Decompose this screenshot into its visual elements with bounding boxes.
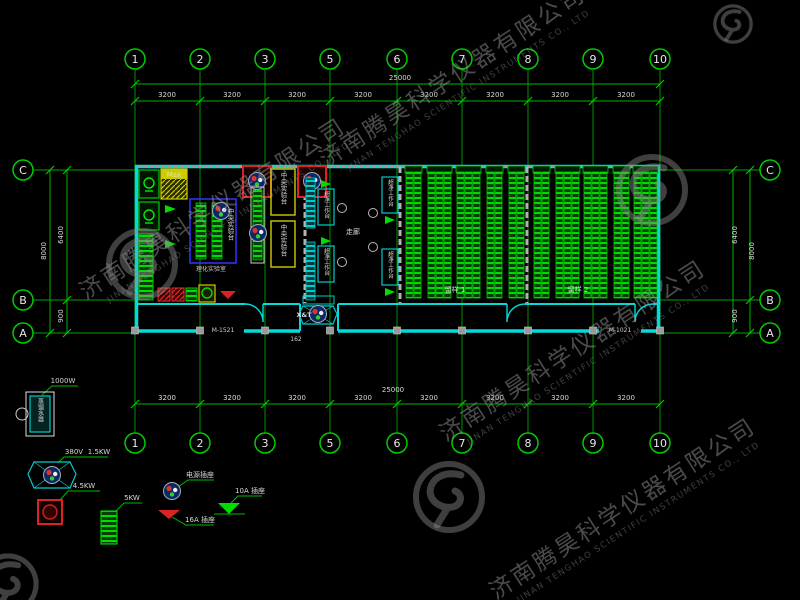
kw5-label: 5KW bbox=[124, 494, 140, 502]
svg-text:3200: 3200 bbox=[158, 394, 176, 402]
wall-counter bbox=[306, 242, 315, 300]
outlet-power-label: 电源插座 bbox=[186, 470, 214, 479]
stool bbox=[338, 204, 347, 213]
svg-text:8: 8 bbox=[525, 437, 532, 450]
svg-text:3200: 3200 bbox=[617, 394, 635, 402]
svg-text:2: 2 bbox=[197, 53, 204, 66]
corridor-label: 走廊 bbox=[346, 227, 360, 236]
axis-bubbles-right: C B A bbox=[760, 160, 780, 343]
clean-bench: 超净工作台 bbox=[382, 177, 398, 224]
svg-text:超净工作台: 超净工作台 bbox=[387, 178, 394, 208]
axis-bubbles-bottom: 1 2 3 5 6 7 8 9 10 bbox=[125, 433, 670, 453]
svg-text:JINAN TENGHAO SCIENTIFIC INSTR: JINAN TENGHAO SCIENTIFIC INSTRUMENTS CO.… bbox=[465, 282, 713, 448]
max-label: Max bbox=[167, 171, 181, 179]
left-dimensions: 8000 6400 900 bbox=[40, 166, 71, 337]
svg-text:10: 10 bbox=[653, 437, 667, 450]
clean-bench-label: 超净工作台 bbox=[323, 190, 330, 220]
svg-text:超净工作台: 超净工作台 bbox=[323, 247, 330, 277]
svg-text:5: 5 bbox=[327, 437, 334, 450]
kw45-label: 4.5KW bbox=[73, 482, 95, 490]
volt-label: 380V bbox=[65, 448, 83, 456]
svg-text:2: 2 bbox=[197, 437, 204, 450]
svg-text:6: 6 bbox=[394, 53, 401, 66]
svg-text:3200: 3200 bbox=[288, 394, 306, 402]
svg-text:3: 3 bbox=[262, 437, 269, 450]
dim-total-top: 25000 bbox=[389, 74, 411, 82]
dim-bay: 3200 bbox=[158, 91, 176, 99]
bench-machine bbox=[199, 285, 215, 302]
svg-text:JINAN TENGHAO SCIENTIFIC INSTR: JINAN TENGHAO SCIENTIFIC INSTRUMENTS CO.… bbox=[515, 440, 763, 600]
distiller-label: 蒸馏水器 bbox=[37, 397, 44, 423]
svg-text:B: B bbox=[766, 294, 774, 307]
legend-distiller: 1000W 蒸馏水器 bbox=[16, 377, 78, 436]
svg-text:C: C bbox=[19, 164, 27, 177]
svg-text:3200: 3200 bbox=[223, 91, 241, 99]
svg-text:5: 5 bbox=[327, 53, 334, 66]
svg-text:6400: 6400 bbox=[731, 226, 739, 244]
svg-text:B: B bbox=[19, 294, 27, 307]
legend-outlet-16a: 16A 插座 bbox=[158, 510, 215, 525]
sample-room-1-racks: 留样 1 bbox=[405, 166, 525, 298]
dim-height-left: 8000 bbox=[40, 242, 48, 260]
floorplan-drawing: 25000 3200 3200 3200 3200 3200 3200 3200… bbox=[0, 0, 800, 600]
distiller-power-label: 1000W bbox=[51, 377, 76, 385]
legend: 1000W 蒸馏水器 380V 1.5KW 4.5KW 5KW 电源插座 16A… bbox=[16, 377, 265, 544]
sample-room-2-racks: 留样 2 bbox=[533, 166, 658, 298]
watermark-logo bbox=[715, 6, 751, 42]
stool bbox=[338, 258, 347, 267]
entry-label: X&T bbox=[296, 311, 312, 319]
wall-note: 162 bbox=[290, 336, 302, 343]
watermark-logo bbox=[0, 556, 36, 600]
legend-power-outlet: 电源插座 bbox=[164, 470, 215, 500]
watermark-logo bbox=[416, 464, 482, 530]
wall-bench-yellow: 中央实验台 bbox=[271, 221, 295, 267]
svg-text:9: 9 bbox=[590, 437, 597, 450]
air-wedge bbox=[165, 205, 176, 213]
svg-text:6: 6 bbox=[394, 437, 401, 450]
right-dimensions: 6400 900 8000 bbox=[729, 166, 756, 337]
sink-symbol bbox=[220, 291, 236, 299]
kw15-label: 1.5KW bbox=[88, 448, 110, 456]
svg-text:10: 10 bbox=[653, 53, 667, 66]
svg-text:C: C bbox=[766, 164, 774, 177]
svg-text:3200: 3200 bbox=[354, 394, 372, 402]
entrance-air-unit: X&T bbox=[296, 296, 337, 324]
svg-text:中央实验台: 中央实验台 bbox=[279, 223, 287, 258]
svg-text:3200: 3200 bbox=[354, 91, 372, 99]
floor-unit bbox=[172, 288, 184, 301]
svg-text:6400: 6400 bbox=[57, 226, 65, 244]
axis-bubbles-left: C B A bbox=[13, 160, 33, 343]
room2-label: 留样 2 bbox=[568, 285, 589, 294]
max-cabinet: Max bbox=[161, 169, 187, 199]
svg-text:1: 1 bbox=[132, 437, 139, 450]
svg-text:900: 900 bbox=[731, 309, 739, 322]
svg-text:9: 9 bbox=[590, 53, 597, 66]
watermarks: 济南腾昊科学仪器有限公司 JINAN TENGHAO SCIENTIFIC IN… bbox=[0, 0, 767, 600]
room-left-label: 理化实验室 bbox=[196, 265, 226, 273]
svg-text:3200: 3200 bbox=[223, 394, 241, 402]
clean-bench: 超净工作台 bbox=[382, 249, 398, 296]
svg-text:3200: 3200 bbox=[288, 91, 306, 99]
wall-counter bbox=[306, 178, 315, 228]
legend-outlet-10a: 10A 插座 bbox=[214, 486, 265, 514]
stool bbox=[369, 209, 378, 218]
equipment-box bbox=[139, 170, 159, 198]
equipment-box bbox=[139, 202, 159, 230]
svg-text:3200: 3200 bbox=[551, 91, 569, 99]
svg-text:3200: 3200 bbox=[486, 91, 504, 99]
axis-bubbles-top: 1 2 3 5 6 7 8 9 10 bbox=[125, 49, 670, 69]
svg-text:A: A bbox=[19, 327, 27, 340]
stool bbox=[369, 243, 378, 252]
svg-text:超净工作台: 超净工作台 bbox=[387, 250, 394, 280]
svg-text:1: 1 bbox=[132, 53, 139, 66]
outlet-10a-label: 10A 插座 bbox=[235, 486, 265, 495]
dim-height-right: 8000 bbox=[748, 242, 756, 260]
svg-text:3200: 3200 bbox=[420, 394, 438, 402]
dim-total-bottom: 25000 bbox=[382, 386, 404, 394]
legend-hex-unit: 380V 1.5KW bbox=[28, 448, 110, 488]
floor-unit bbox=[186, 288, 197, 301]
svg-text:济南腾昊科学仪器有限公司: 济南腾昊科学仪器有限公司 bbox=[315, 0, 591, 173]
door-label-m1521: M-1521 bbox=[212, 327, 235, 334]
clean-bench: 超净工作台 bbox=[318, 237, 334, 282]
outlet-16a-label: 16A 插座 bbox=[185, 515, 215, 524]
cad-canvas: 25000 3200 3200 3200 3200 3200 3200 3200… bbox=[0, 0, 800, 600]
legend-green-cabinet: 5KW bbox=[101, 494, 142, 544]
svg-text:3200: 3200 bbox=[551, 394, 569, 402]
svg-text:900: 900 bbox=[57, 309, 65, 322]
room1-label: 留样 1 bbox=[445, 285, 466, 294]
svg-text:3200: 3200 bbox=[617, 91, 635, 99]
svg-text:A: A bbox=[766, 327, 774, 340]
svg-text:3: 3 bbox=[262, 53, 269, 66]
